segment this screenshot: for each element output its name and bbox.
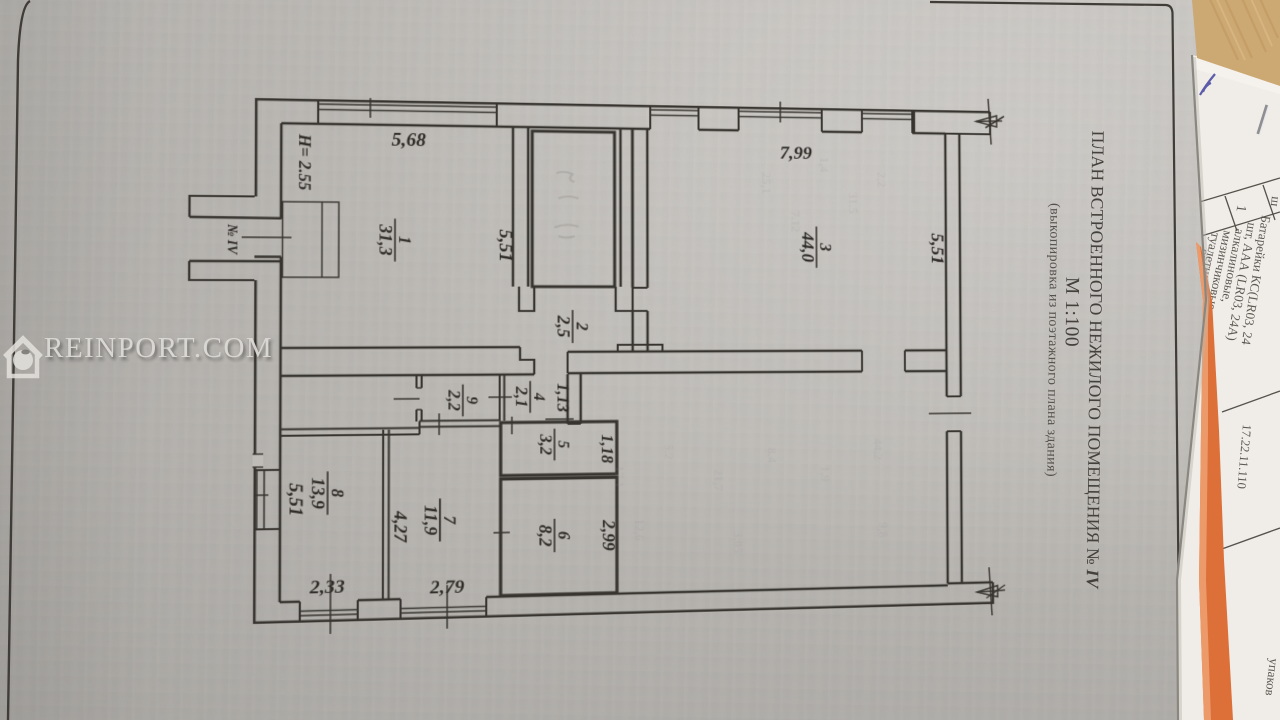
svg-text:ш: ш [1268,196,1280,208]
